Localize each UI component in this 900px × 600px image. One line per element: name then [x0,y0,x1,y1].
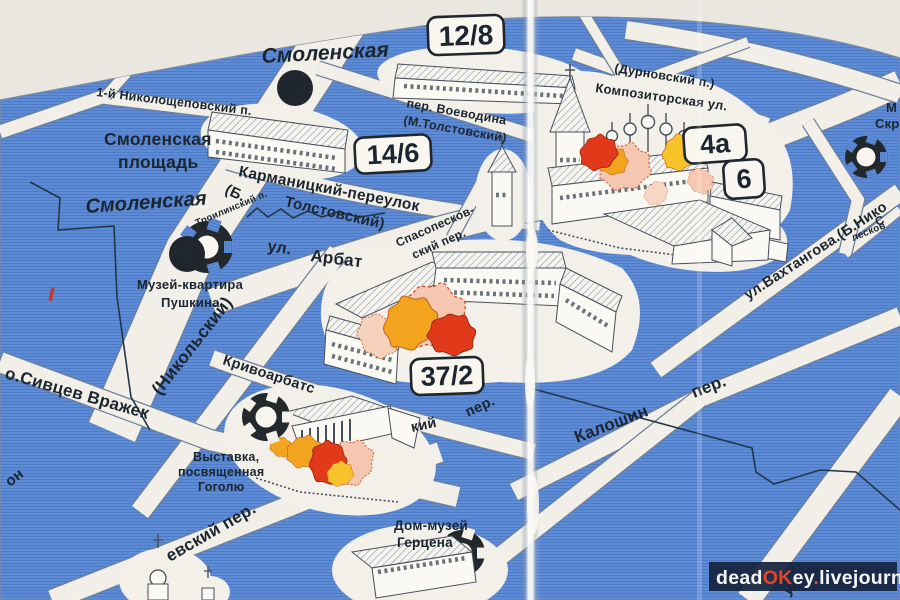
poi-label-gogol-exhibit-1: Выставка, [193,450,259,464]
poi-label-gogol-exhibit-3: Гоголю [198,480,245,494]
poi-label-herzen-museum-2: Герцена [397,535,453,550]
metro-station-icon-top: М [277,70,313,106]
svg-text:12/8: 12/8 [438,19,494,52]
poi-label-pushkin-museum-1: Музей-квартира [137,277,244,292]
poi-label-pushkin-museum-2: Пушкина [161,295,220,310]
svg-text:37/2: 37/2 [420,360,474,392]
badge-14-6: 14/6 [354,134,432,174]
metro-letter: М [285,74,306,102]
poi-label-skryabin-m: М [886,100,897,115]
watermark-text: deadOKey.livejournal.com [716,567,900,589]
svg-text:6: 6 [735,164,752,195]
poi-label-herzen-museum-1: Дом-музей [394,518,468,533]
map-scan: М М Смоленская Смоленская Смоленская пло… [0,0,900,600]
badge-4a: 4а [683,124,747,164]
metro-station-icon-bottom: М [169,236,205,272]
poi-label-skryabin-skr: Скр [875,116,900,131]
street-label-arbat-prefix: ул. [266,238,292,258]
badge-12-8: 12/8 [427,15,504,56]
badge-37-2: 37/2 [410,357,483,395]
metro-letter: М [177,240,198,268]
badge-6: 6 [723,159,766,200]
area-label-smolenskaya-square-2: площадь [118,152,198,172]
svg-text:14/6: 14/6 [366,138,420,171]
area-label-smolenskaya-square-1: Смоленская [104,129,212,149]
svg-text:4а: 4а [699,128,732,160]
watermark: deadOKey.livejournal.com [709,562,900,591]
tourist-map: М М Смоленская Смоленская Смоленская пло… [0,0,900,600]
poi-label-gogol-exhibit-2: посвященная [178,465,264,479]
